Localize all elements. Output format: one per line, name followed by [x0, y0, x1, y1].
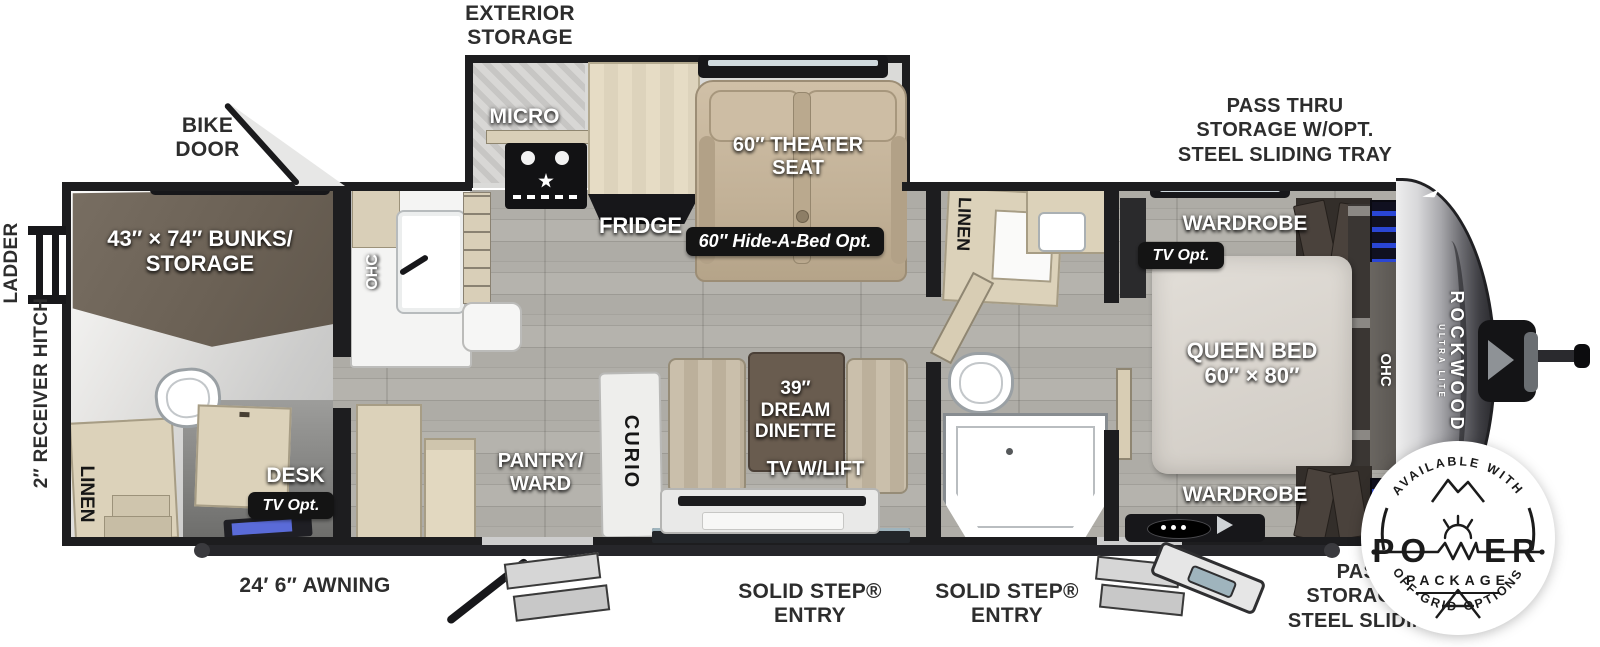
- stove: [505, 143, 587, 209]
- tv-opt-bedroom-badge: TV Opt.: [1138, 242, 1224, 269]
- desk-label: DESK: [243, 464, 348, 488]
- wardrobe-slot: [239, 412, 249, 417]
- tv-screen-slot: [678, 496, 866, 506]
- burner-star: [538, 173, 554, 189]
- dinette-label: 39″ DREAM DINETTE: [733, 378, 858, 443]
- tv-soundbar: [702, 512, 844, 530]
- shower: [943, 413, 1108, 541]
- wardrobe-top-label: WARDROBE: [1143, 212, 1347, 236]
- vanity-dot-3: [1181, 525, 1186, 530]
- power-package-badge: AVAILABLE WITH PO ER PACKAGE OFF-GRID OP…: [1358, 438, 1558, 638]
- entry-steps-left-tread-2: [513, 584, 610, 621]
- hitch-jack: [1524, 332, 1538, 392]
- badge-package-text: PACKAGE: [1406, 572, 1510, 588]
- bath-left-wall-upper: [926, 187, 941, 297]
- burner-right: [555, 151, 569, 165]
- toilet-ring: [959, 362, 1003, 404]
- bath-right-wall-upper: [1104, 187, 1119, 303]
- micro-label: MICRO: [462, 105, 587, 129]
- armrest-right: [891, 136, 907, 264]
- slide-window: [698, 55, 888, 78]
- wardrobe-bottom-label: WARDROBE: [1143, 483, 1347, 507]
- shower-drain: [1006, 448, 1013, 455]
- cap-wing-mark: [1421, 189, 1440, 200]
- hide-a-bed-badge: 60″ Hide-A-Bed Opt.: [686, 227, 884, 256]
- bike-door-label: BIKE DOOR: [140, 114, 275, 162]
- top-wall-left: [62, 182, 472, 191]
- pass-thru-top-label: PASS THRU STORAGE W/OPT. STEEL SLIDING T…: [1085, 94, 1485, 167]
- entry-steps-left-tread-1: [504, 552, 601, 589]
- fridge-cabinet: [588, 62, 700, 197]
- ohc-bedroom-label: OHC: [1374, 335, 1394, 405]
- badge-power-left: PO: [1372, 532, 1432, 569]
- entry-door-window: [1186, 564, 1237, 599]
- awning-label: 24′ 6″ AWNING: [205, 574, 425, 598]
- tv-lift-label: TV W/LIFT: [723, 458, 908, 481]
- toilet: [948, 352, 1014, 414]
- cupholder-1: [796, 210, 809, 223]
- vanity-dot-1: [1161, 525, 1166, 530]
- bedroom-vanity: [1125, 514, 1265, 542]
- bunks-label: 43″ × 74″ BUNKS/ STORAGE: [88, 226, 312, 276]
- fridge-label: FRIDGE: [578, 213, 703, 238]
- rear-linen-steps: [112, 495, 170, 517]
- queen-bed-label: QUEEN BED 60″ × 80″: [1150, 338, 1354, 388]
- bath-right-wall-lower: [1104, 430, 1119, 541]
- entry-left-label: SOLID STEP® ENTRY: [705, 580, 915, 628]
- floorplan-canvas: EXTERIOR STORAGE BIKE DOOR PASS THRU STO…: [0, 0, 1600, 647]
- badge-line-dot-left: [1371, 549, 1376, 554]
- entry-right-label: SOLID STEP® ENTRY: [902, 580, 1112, 628]
- tv-lift-console: [660, 488, 880, 534]
- tv-opt-rear-badge: TV Opt.: [248, 492, 334, 519]
- awning-cap-left: [194, 543, 210, 558]
- bath-sink: [1038, 212, 1086, 252]
- rear-divider-wall-upper: [333, 185, 351, 357]
- bath-left-wall-lower: [926, 362, 941, 541]
- awning-cap-right: [1324, 543, 1340, 558]
- brand-name: ROCKWOOD: [1446, 272, 1467, 452]
- brand-logo: ROCKWOOD ULTRA LITE: [1427, 272, 1467, 452]
- stove-grate: [513, 195, 579, 199]
- kitchen-drawers: [463, 192, 491, 304]
- rear-linen-steps-2: [104, 516, 172, 538]
- burner-left: [521, 151, 535, 165]
- microwave-shelf: [486, 130, 590, 144]
- bedroom-sink-bowl: [1147, 519, 1211, 539]
- vanity-dot-2: [1171, 525, 1176, 530]
- shower-inner: [956, 426, 1095, 528]
- pantry-cabinet: [356, 404, 422, 546]
- bath-vanity: [1026, 188, 1110, 254]
- badge-power-right: ER: [1484, 532, 1542, 569]
- theater-seat-label: 60″ THEATER SEAT: [706, 134, 890, 180]
- linen-rear-label: LINEN: [73, 452, 97, 536]
- curio-label: CURIO: [618, 387, 642, 517]
- exterior-storage-label: EXTERIOR STORAGE: [430, 2, 610, 50]
- vanity-faucet: [1217, 516, 1233, 534]
- top-wall-right: [902, 182, 1402, 191]
- pantry-label: PANTRY/ WARD: [478, 450, 603, 496]
- linen-bath-label: LINEN: [951, 184, 976, 265]
- kitchen-sink: [396, 210, 466, 314]
- receiver-hitch-label: 2″ RECEIVER HITCH: [31, 268, 57, 518]
- ohc-kitchen-label: OHC: [364, 232, 384, 312]
- kitchen-stool: [462, 302, 522, 352]
- pantry-box: [424, 438, 476, 540]
- laptop-screen: [232, 519, 293, 535]
- brand-sub: ULTRA LITE: [1437, 272, 1446, 452]
- ladder-label: LADDER: [1, 193, 27, 333]
- badge-line-dot-right: [1539, 549, 1544, 554]
- hitch-knob: [1574, 344, 1590, 368]
